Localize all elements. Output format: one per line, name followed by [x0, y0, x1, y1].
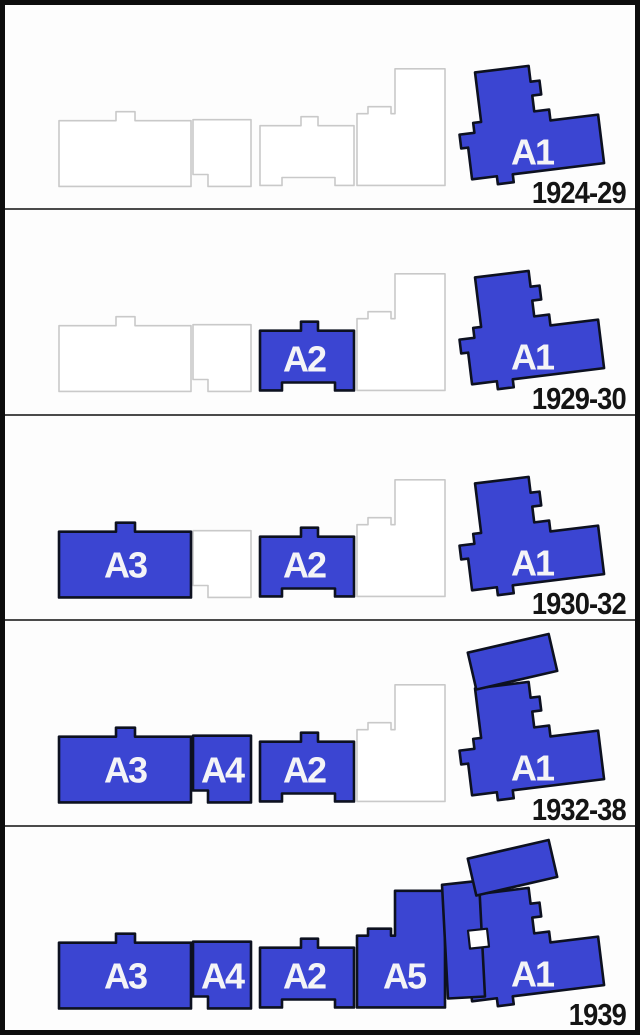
building-A1-label: A1 — [511, 953, 554, 994]
building-A3-outline — [59, 112, 191, 187]
building-A2-label: A2 — [283, 955, 326, 996]
building-A1-label: A1 — [511, 132, 554, 173]
building-A1-label: A1 — [511, 337, 554, 378]
building-A1-extension — [468, 634, 557, 690]
building-A3-label: A3 — [104, 750, 147, 791]
year-label: 1930-32 — [532, 588, 626, 619]
phase-panel-1932-38: A3A4A2A1 1932-38 — [5, 621, 635, 824]
building-A4-label: A4 — [201, 955, 245, 996]
building-A1-extension — [468, 840, 557, 896]
site-plan-1939: A3A4A2A5A1 — [5, 827, 635, 1030]
year-label: 1932-38 — [532, 794, 626, 825]
building-A1-label: A1 — [511, 748, 554, 789]
building-A5-outline — [357, 685, 445, 802]
building-A3-label: A3 — [104, 544, 147, 585]
building-A5-outline — [357, 274, 445, 391]
building-A2-label: A2 — [283, 544, 326, 585]
building-A5-label: A5 — [383, 955, 426, 996]
year-label: 1939 — [569, 999, 626, 1030]
phase-panel-1930-32: A3A2A1 1930-32 — [5, 416, 635, 619]
year-label: 1924-29 — [532, 177, 626, 208]
building-A4-label: A4 — [201, 750, 245, 791]
building-A5-outline — [357, 480, 445, 597]
phase-panel-1924-29: A1 1924-29 — [5, 5, 635, 208]
junction-notch — [468, 928, 489, 948]
phase-panel-1929-30: A2A1 1929-30 — [5, 210, 635, 413]
building-A4-outline — [193, 530, 251, 597]
building-A3-outline — [59, 317, 191, 392]
building-A4-outline — [193, 325, 251, 392]
building-A2-label: A2 — [283, 750, 326, 791]
year-label: 1929-30 — [532, 383, 626, 414]
building-A2-outline — [260, 117, 354, 186]
building-A1-label: A1 — [511, 542, 554, 583]
building-A4-outline — [193, 120, 251, 187]
building-A2-label: A2 — [283, 339, 326, 380]
building-A3-label: A3 — [104, 955, 147, 996]
building-A5-outline — [357, 69, 445, 186]
phase-panel-1939: A3A4A2A5A1 1939 — [5, 827, 635, 1030]
phases-diagram: A1 1924-29 A2A1 1929-30 A3A2A1 1930-32 A… — [0, 0, 640, 1035]
